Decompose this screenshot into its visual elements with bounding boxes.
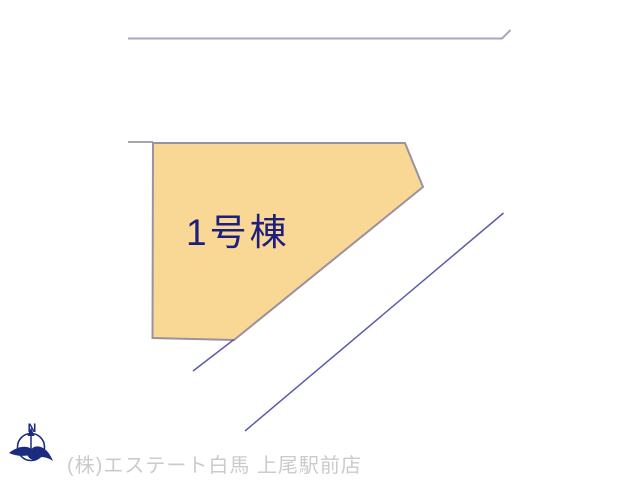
site-plan: 1号棟 N (株)エステート白馬 上尾駅前店 bbox=[0, 0, 640, 480]
plot-label: 1号棟 bbox=[186, 213, 290, 254]
compass-north-label: N bbox=[25, 421, 39, 435]
north-boundary-line bbox=[128, 30, 511, 39]
site-plan-drawing bbox=[0, 0, 640, 480]
plot-edge-extension-line bbox=[193, 340, 234, 372]
company-watermark: (株)エステート白馬 上尾駅前店 bbox=[67, 449, 362, 478]
